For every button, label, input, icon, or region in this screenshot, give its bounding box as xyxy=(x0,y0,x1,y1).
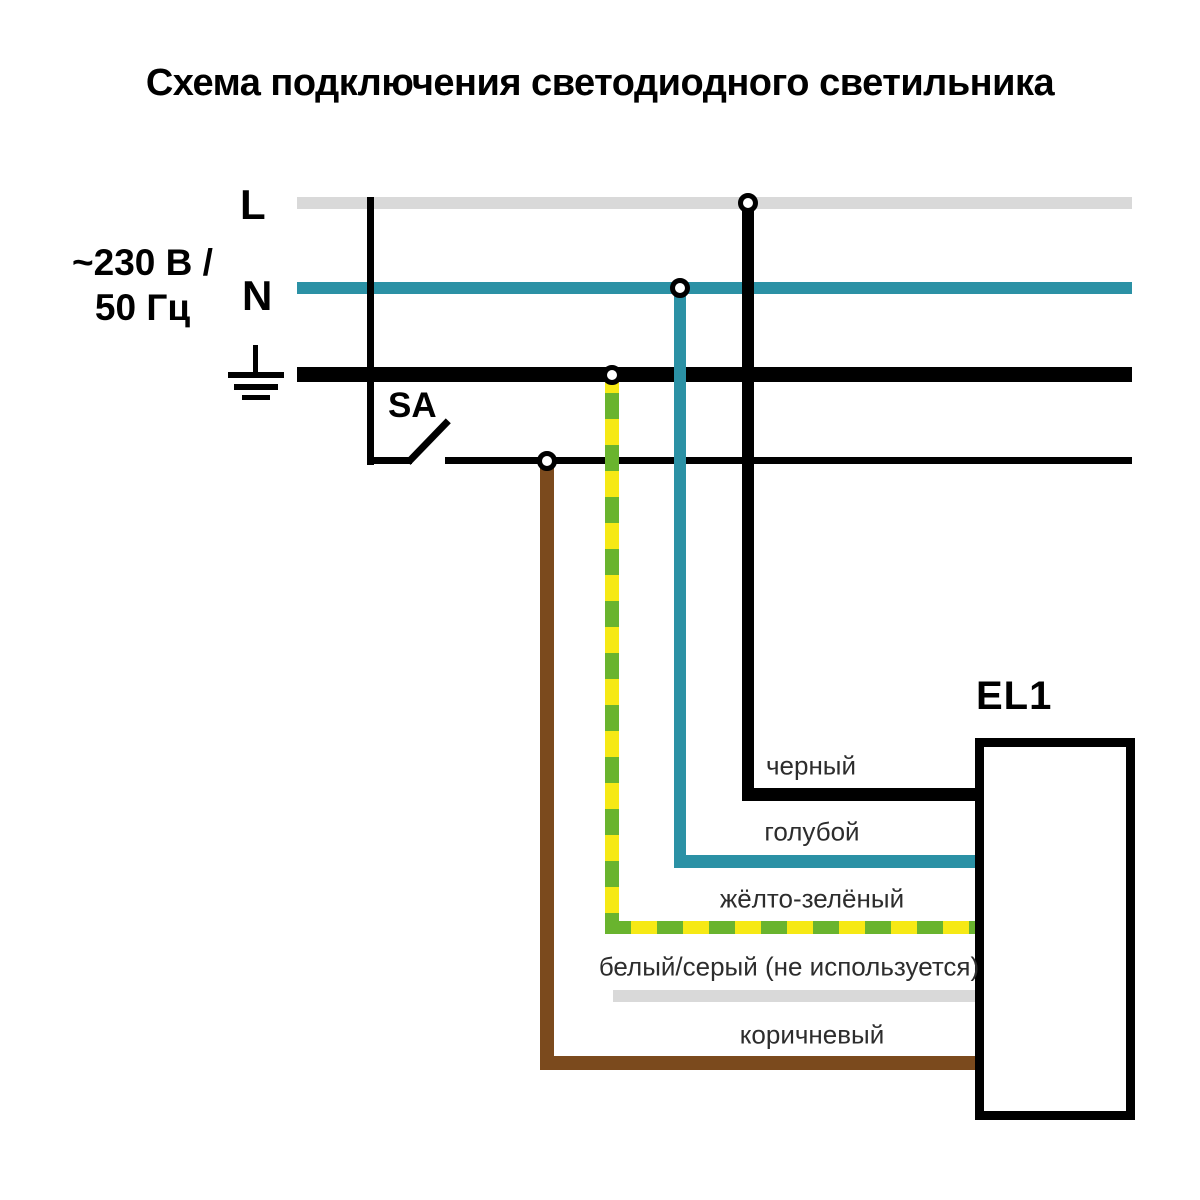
switch-feed-wire xyxy=(367,197,374,465)
white-gray-wire-horizontal xyxy=(613,990,975,1002)
blue-wire-vertical xyxy=(674,288,686,868)
page-title: Схема подключения светодиодного светильн… xyxy=(0,62,1200,105)
wire-label-black: черный xyxy=(766,751,856,782)
wire-label-blue: голубой xyxy=(764,817,859,848)
wire-label-white-gray: белый/серый (не используется) xyxy=(599,952,979,983)
voltage-line1: ~230 В / xyxy=(45,240,240,285)
wire-label-yellow-green: жёлто-зелёный xyxy=(720,884,904,915)
black-wire-horizontal xyxy=(742,788,975,801)
ground-icon xyxy=(226,340,286,400)
blue-wire-horizontal xyxy=(674,855,975,868)
luminaire-box xyxy=(975,738,1135,1120)
bus-line-n xyxy=(297,282,1132,294)
bus-line-l xyxy=(297,197,1132,209)
luminaire-label: EL1 xyxy=(976,674,1052,719)
junction-dot-pe xyxy=(602,365,622,385)
wire-label-brown: коричневый xyxy=(740,1020,885,1051)
wiring-diagram: Схема подключения светодиодного светильн… xyxy=(0,0,1200,1200)
yellow-green-wire-horizontal xyxy=(605,921,975,934)
junction-dot-l xyxy=(738,193,758,213)
voltage-line2: 50 Гц xyxy=(45,285,240,330)
yellow-green-wire-vertical xyxy=(605,380,619,934)
neutral-n-label: N xyxy=(242,272,272,320)
junction-dot-n xyxy=(670,278,690,298)
brown-wire-horizontal xyxy=(540,1056,975,1070)
bus-line-pe xyxy=(297,367,1132,382)
voltage-label: ~230 В / 50 Гц xyxy=(45,240,240,330)
switch-label: SA xyxy=(388,386,437,426)
black-wire-vertical xyxy=(742,203,754,801)
junction-dot-switched xyxy=(537,451,557,471)
brown-wire-vertical xyxy=(540,461,554,1070)
line-l-label: L xyxy=(240,181,266,229)
